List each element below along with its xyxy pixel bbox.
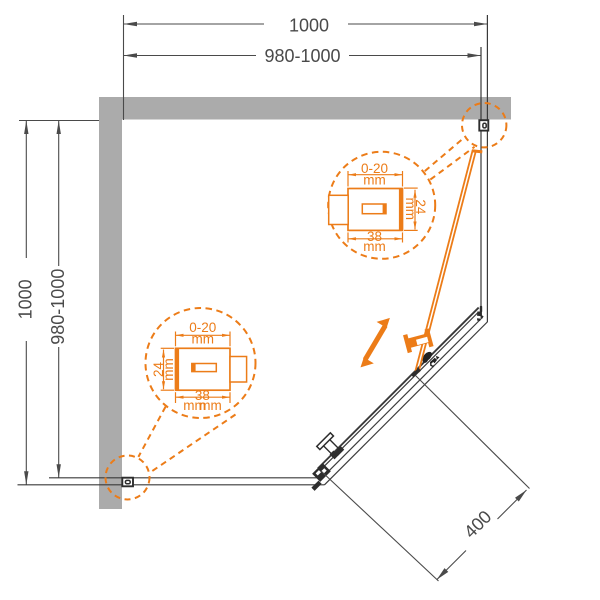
svg-text:mm: mm (363, 239, 386, 254)
svg-text:980-1000: 980-1000 (264, 46, 340, 66)
svg-text:mm: mm (199, 398, 222, 413)
svg-text:mm: mm (363, 173, 386, 188)
svg-text:1000: 1000 (16, 279, 36, 319)
svg-text:mm: mm (403, 197, 418, 220)
svg-text:mm: mm (161, 358, 176, 381)
svg-text:mm: mm (192, 332, 215, 347)
svg-text:1000: 1000 (289, 15, 329, 35)
svg-text:980-1000: 980-1000 (48, 269, 68, 345)
